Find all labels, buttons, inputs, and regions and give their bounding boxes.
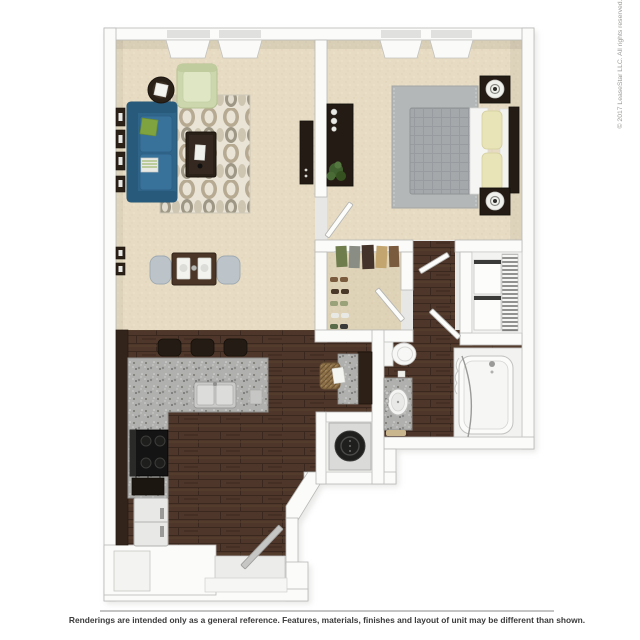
wall-bedroom-bottom-right <box>455 240 522 252</box>
side-table <box>148 77 174 103</box>
stove-controls <box>130 430 136 476</box>
washer-dot <box>349 440 351 442</box>
entry-step-lower <box>205 578 287 592</box>
dresser <box>327 104 353 186</box>
wall-left <box>104 28 116 601</box>
art-mat <box>119 266 123 272</box>
bar-stool <box>158 339 181 356</box>
armchair <box>177 64 217 108</box>
dining-chair-left <box>150 256 171 284</box>
art-mat <box>119 113 123 121</box>
window-bedroom-1 <box>380 30 422 58</box>
washer-dot <box>349 450 351 452</box>
bathtub <box>454 348 522 437</box>
storage-bin-handle <box>474 260 501 264</box>
fridge-handle <box>160 508 164 519</box>
kitchen-cabinets <box>116 330 128 545</box>
wall-bath-left <box>372 330 384 484</box>
tub-faucet <box>489 361 495 367</box>
wall-entry-right <box>286 518 298 564</box>
sofa <box>127 102 177 202</box>
duvet <box>410 108 474 194</box>
wall-laundry-left <box>316 412 326 484</box>
media-console <box>300 121 313 184</box>
storage-bin <box>474 296 501 330</box>
burner <box>155 458 165 468</box>
coffee-table <box>186 132 216 177</box>
storage-bin <box>474 260 501 294</box>
washer-dot <box>349 445 351 447</box>
fridge-handle <box>160 526 164 537</box>
wall-closet-left <box>315 252 327 342</box>
refrigerator <box>134 498 168 546</box>
dining-chair-right <box>217 256 240 284</box>
nightstand-top <box>480 76 510 103</box>
art-mat <box>119 250 123 256</box>
art-mat <box>119 135 123 143</box>
floor-plan-page: Renderings are intended only as a genera… <box>0 0 640 640</box>
wall-bath-bottom <box>384 437 534 449</box>
counter-item <box>250 390 262 404</box>
dresser-decor <box>331 118 337 124</box>
headboard <box>509 107 519 193</box>
drain <box>397 401 399 403</box>
plate <box>201 264 209 272</box>
console-knob <box>305 175 308 178</box>
sofa-arm <box>127 102 177 113</box>
entry-closet-interior <box>114 551 150 591</box>
art-mat <box>119 157 123 165</box>
laundry-closet <box>326 422 372 472</box>
storage-bin-handle <box>474 296 501 300</box>
art-mat <box>119 180 123 187</box>
wall-divider-living-bedroom <box>315 40 327 197</box>
dishwasher <box>132 478 164 495</box>
kitchen-sink <box>194 382 236 408</box>
bath-mat <box>386 430 406 436</box>
toilet <box>384 342 416 366</box>
burner <box>141 436 151 446</box>
wall-linen-bottom <box>460 333 522 345</box>
sink-faucet <box>213 382 217 386</box>
table-tray <box>194 145 205 161</box>
dresser-decor <box>331 109 337 115</box>
wall-right <box>522 28 534 449</box>
desk-paper <box>332 367 345 383</box>
stove <box>130 430 168 476</box>
shade <box>116 40 315 49</box>
linen-closet <box>472 252 522 333</box>
table-decor <box>198 164 203 169</box>
nightstand-bottom <box>480 188 510 215</box>
hanging-clothes <box>335 245 399 269</box>
centerpiece <box>191 265 196 270</box>
yellow-pillow <box>482 111 502 149</box>
faucet <box>385 391 389 395</box>
floor-plan-image: Renderings are intended only as a genera… <box>0 0 640 640</box>
wall-closet-bottom <box>315 330 413 342</box>
bathroom-vanity <box>384 378 412 430</box>
shade <box>327 40 522 49</box>
wall-linen-left <box>460 252 472 345</box>
faucet <box>385 399 389 403</box>
armchair-back <box>177 64 217 72</box>
bed <box>410 107 519 194</box>
dining-table <box>172 253 216 285</box>
window-bedroom-2 <box>430 30 473 58</box>
burner <box>155 436 165 446</box>
yellow-pillow <box>482 153 502 191</box>
bar-stool <box>224 339 247 356</box>
table-lamp <box>154 83 168 97</box>
green-pillow <box>140 118 158 136</box>
dresser-decor <box>332 127 337 132</box>
copyright-watermark: © 2017 LeaseStar LLC. All rights reserve… <box>616 0 624 128</box>
window-living-2 <box>218 30 262 58</box>
footer-disclaimer: Renderings are intended only as a genera… <box>69 615 585 625</box>
sofa-arm <box>127 191 177 202</box>
console-knob <box>305 169 308 172</box>
window-living-1 <box>166 30 210 58</box>
tub-drain <box>491 371 494 374</box>
sofa-back <box>127 102 138 202</box>
white-pillow <box>141 158 158 172</box>
burner <box>141 458 151 468</box>
toilet-paper <box>398 371 405 377</box>
plate <box>180 264 188 272</box>
armchair-cushion <box>183 71 211 102</box>
desk-hutch <box>358 352 372 404</box>
wall-closet-right <box>401 252 413 290</box>
faucet <box>385 407 389 411</box>
bar-stool <box>191 339 214 356</box>
wire-shelving <box>502 254 518 331</box>
